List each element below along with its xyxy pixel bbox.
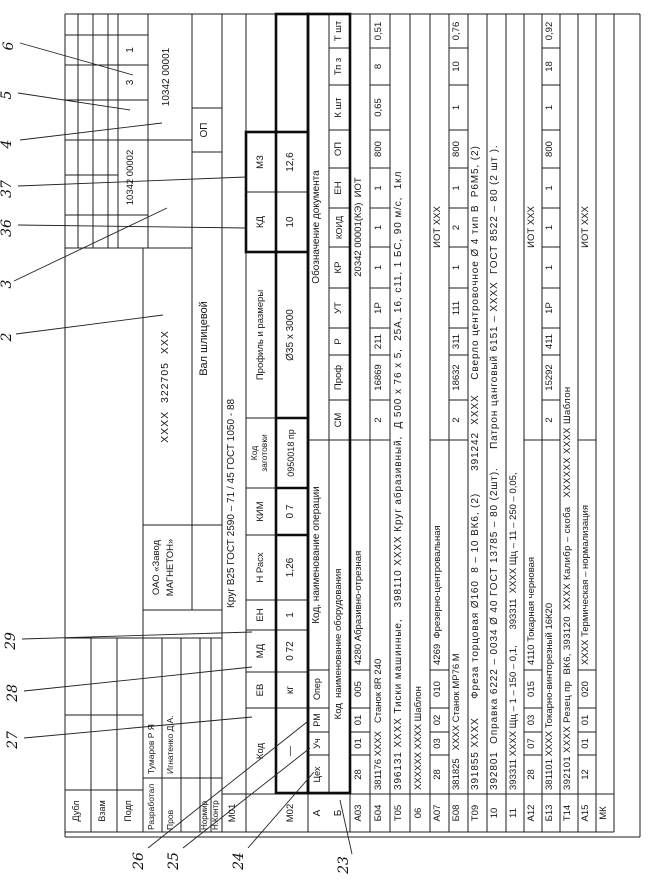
row-cex: 28 (433, 755, 443, 794)
row-doc-ref: ИОТ ХХХ (581, 14, 591, 440)
table-header-b: Б (334, 794, 345, 832)
m02-label: М02 (286, 794, 296, 832)
row-oper: 005 (354, 670, 364, 708)
table-header-sm: СМ (334, 400, 344, 440)
row-tp-z: 8 (374, 48, 384, 85)
callout-3: 3 (0, 274, 15, 294)
m02-header-kod: Код (256, 708, 266, 794)
callout-25: 25 (167, 850, 182, 872)
row-r: 211 (374, 328, 384, 355)
row-doc-ref: ИОТ ХХХ (527, 14, 537, 440)
table-header-tp-z: Тп з (334, 48, 344, 85)
row-rm: 01 (581, 708, 591, 732)
m02-value-md: 0 72 (286, 630, 297, 672)
table-header-k-sht: К шт (334, 85, 344, 130)
row-op: 800 (545, 130, 555, 168)
callout-4: 4 (0, 134, 15, 154)
row-t-sht: 0,76 (452, 14, 462, 48)
row-r: 311 (452, 328, 462, 355)
m02-value-kod: — (286, 708, 297, 794)
table-header-cex: Цех (313, 755, 322, 794)
part-name: Вал шлицевой (199, 152, 211, 525)
m02-value-kim: 0 7 (286, 488, 297, 535)
row-koid: 1 (374, 208, 384, 247)
row-uch: 07 (527, 732, 537, 755)
table-header-ut: УТ (334, 288, 344, 328)
row-label: МК (599, 794, 609, 832)
m02-value-kd: 10 (286, 192, 297, 252)
row-uch: 01 (581, 732, 591, 755)
row-label: А12 (527, 794, 537, 832)
row-ut: 1Р (374, 288, 384, 328)
row-op-name: 4280 Абразивно-отрезная (354, 551, 364, 665)
sheet-total: 3 (126, 65, 137, 100)
row-k-sht: 1 (452, 85, 462, 130)
nkontr-label: Н.Контр (212, 800, 220, 830)
op-code-cell: ОП (200, 108, 211, 152)
row-label: А07 (433, 794, 443, 832)
row-label: Б13 (545, 794, 555, 832)
m01-material: Круг В25 ГОСТ 2590 – 71 / 45 ГОСТ 1050 -… (227, 399, 238, 608)
row-op: 800 (452, 130, 462, 168)
row-uch: 03 (433, 732, 443, 755)
part-designation: ХХХХ 322705 ХХХ (160, 248, 171, 525)
row-kr: 1 (545, 247, 555, 288)
org-name-line1: ОАО «Завод (152, 525, 162, 610)
row-equipment: 381176 ХХХХ Станок 8R 240 (374, 659, 384, 790)
table-header-en: ЕН (334, 168, 344, 208)
row-op: 800 (374, 130, 384, 168)
callout-24: 24 (232, 850, 247, 872)
m02-header-kim: КИМ (256, 488, 266, 535)
sheet-number: 1 (126, 35, 137, 65)
doc-number-1: 10342 00001 (162, 14, 173, 140)
table-header-koid: КОИД (335, 208, 344, 247)
row-tp-z: 18 (545, 48, 555, 85)
row-en: 1 (374, 168, 384, 208)
row-tooling: ХХХХХХ ХХХХ Шаблон (414, 686, 424, 790)
row-r: 411 (545, 328, 555, 355)
m02-header-md: МД (256, 630, 266, 672)
row-cex: 28 (527, 755, 537, 794)
prov-label: Пров (166, 810, 175, 830)
row-oper: 020 (581, 670, 591, 708)
row-koid: 2 (452, 208, 462, 247)
row-rm: 02 (433, 708, 443, 732)
row-label: А15 (581, 794, 591, 832)
row-tp-z: 10 (452, 48, 462, 85)
m02-header-en: ЕН (256, 600, 266, 630)
table-header-oper: Опер (313, 670, 322, 708)
callout-28: 28 (6, 682, 21, 704)
m02-value-en: 1 (286, 600, 297, 630)
razrabotal-label: Разработал (147, 784, 156, 830)
row-doc-ref: 20342 00001(КЭ) ИОТ (354, 14, 364, 440)
row-label: Т09 (471, 794, 481, 832)
row-label: Б04 (374, 794, 384, 832)
row-koid: 1 (545, 208, 555, 247)
callout-2: 2 (0, 327, 15, 347)
callout-23: 23 (337, 854, 352, 876)
row-t-sht: 0,51 (374, 14, 384, 48)
m02-value-ev: кг (286, 672, 297, 708)
table-header-rm: РМ (313, 708, 322, 732)
stamp-podp-label: Подп (124, 790, 133, 832)
row-cex: 12 (581, 755, 591, 794)
callout-27: 27 (6, 729, 21, 751)
scanned-route-card-page: 2 3 4 5 6 36 37 27 28 29 23 24 25 26 Дуб… (0, 0, 655, 880)
row-kr: 1 (374, 247, 384, 288)
row-doc-ref: ИОТ ХХХ (433, 14, 443, 440)
row-prof: 18632 (452, 355, 462, 400)
row-k-sht: 0,65 (374, 85, 384, 130)
row-equipment: 381825 ХХХХ Станок МР76 М (452, 653, 462, 790)
callout-37: 37 (0, 178, 15, 200)
m02-header-kodzag-line2: заготовки (260, 418, 269, 488)
m02-header-mz: МЗ (256, 132, 266, 192)
row-tooling: 392101 ХХХХ Резец пр ВК6, 393120 ХХХХ Ка… (563, 386, 573, 790)
normir-label: Нормир (201, 801, 209, 830)
table-header-kr: КР (334, 247, 344, 288)
row-en: 1 (452, 168, 462, 208)
row-sm: 2 (545, 400, 555, 440)
table-header-r: Р (334, 328, 344, 355)
form-grid-lines (0, 0, 655, 880)
row-kr: 1 (452, 247, 462, 288)
row-label: Б08 (452, 794, 462, 832)
row-oper: 010 (433, 670, 443, 708)
doc-number-2: 10342 00002 (126, 140, 136, 215)
row-tooling: 396131 ХХХХ Тиски машинные, 398110 ХХХХ … (394, 171, 405, 790)
table-header-t-sht: Т шт (334, 14, 344, 48)
row-tooling: 391855 ХХХХ Фреза торцовая Ø160 8 – 10 В… (471, 145, 482, 790)
row-label: Т14 (563, 794, 573, 832)
row-ut: 1Р (545, 288, 555, 328)
table-header-op: ОП (334, 130, 344, 168)
m02-header-profil: Профиль и размеры (256, 252, 266, 418)
route-card-landscape-sheet: 2 3 4 5 6 36 37 27 28 29 23 24 25 26 Дуб… (0, 0, 655, 880)
row-op-name: 4110 Токарная черновая (527, 557, 537, 665)
callout-6: 6 (2, 36, 17, 56)
m02-header-nrasx: Н Расх (256, 535, 266, 600)
razrabotal-name: Тумаров Р Я (147, 724, 156, 774)
stamp-dubl-label: Дубл (72, 790, 81, 832)
table-header-a: А (313, 794, 324, 832)
row-prof: 15292 (545, 355, 555, 400)
m02-header-ev: ЕВ (256, 672, 266, 708)
m02-header-kodzag-line1: Код (250, 418, 259, 488)
row-op-name: 4269 Фрезерно-центровальная (433, 525, 443, 665)
row-ut: 111 (452, 288, 462, 328)
table-header-equip: Код наименование оборудования (334, 494, 344, 794)
callout-29: 29 (4, 630, 19, 652)
m02-value-kodzag: 0950018 пр (287, 418, 296, 488)
table-header-op-name: Код, наименование операции (312, 440, 323, 670)
row-uch: 01 (354, 732, 364, 755)
table-header-uch: Уч (313, 732, 322, 755)
m02-value-nrasx: 1,26 (286, 535, 297, 600)
m01-label: М01 (228, 794, 238, 832)
row-label: 11 (509, 794, 519, 832)
m02-header-kd: КД (256, 192, 266, 252)
table-header-prof: Проф (334, 355, 344, 400)
row-equipment: 381101 ХХХХ Токарно-винторезный 16К20 (545, 603, 555, 790)
row-k-sht: 1 (545, 85, 555, 130)
row-rm: 03 (527, 708, 537, 732)
row-tooling: 392801 Оправка 6222 – 0034 Ø 40 ГОСТ 137… (490, 145, 501, 791)
row-label: 10 (490, 794, 500, 832)
row-prof: 16869 (374, 355, 384, 400)
row-rm: 01 (354, 708, 364, 732)
row-tooling: 393311 ХХХХ Щц – 1 – 150 – 0,1, 393311 Х… (509, 472, 519, 790)
row-sm: 2 (452, 400, 462, 440)
m02-value-profil: Ø35 х 3000 (286, 252, 297, 418)
callout-26: 26 (132, 850, 147, 872)
row-op-name: ХХХХ Термическая – нормализация (581, 505, 591, 665)
prov-name: Игнатенко Д.А. (166, 715, 175, 774)
row-label: А03 (354, 794, 364, 832)
row-cex: 28 (354, 755, 364, 794)
m02-value-mz: 12,6 (286, 132, 297, 192)
org-name-line2: МАГНЕТОН» (166, 525, 176, 610)
row-oper: 015 (527, 670, 537, 708)
row-en: 1 (545, 168, 555, 208)
stamp-vzam-label: Взам (98, 790, 107, 832)
callout-36: 36 (0, 217, 15, 239)
row-label: 06 (414, 794, 424, 832)
row-t-sht: 0,92 (545, 14, 555, 48)
table-header-doc-ref: Обозначение документа (312, 14, 323, 440)
row-sm: 2 (374, 400, 384, 440)
row-label: Т05 (394, 794, 404, 832)
callout-5: 5 (0, 85, 15, 105)
